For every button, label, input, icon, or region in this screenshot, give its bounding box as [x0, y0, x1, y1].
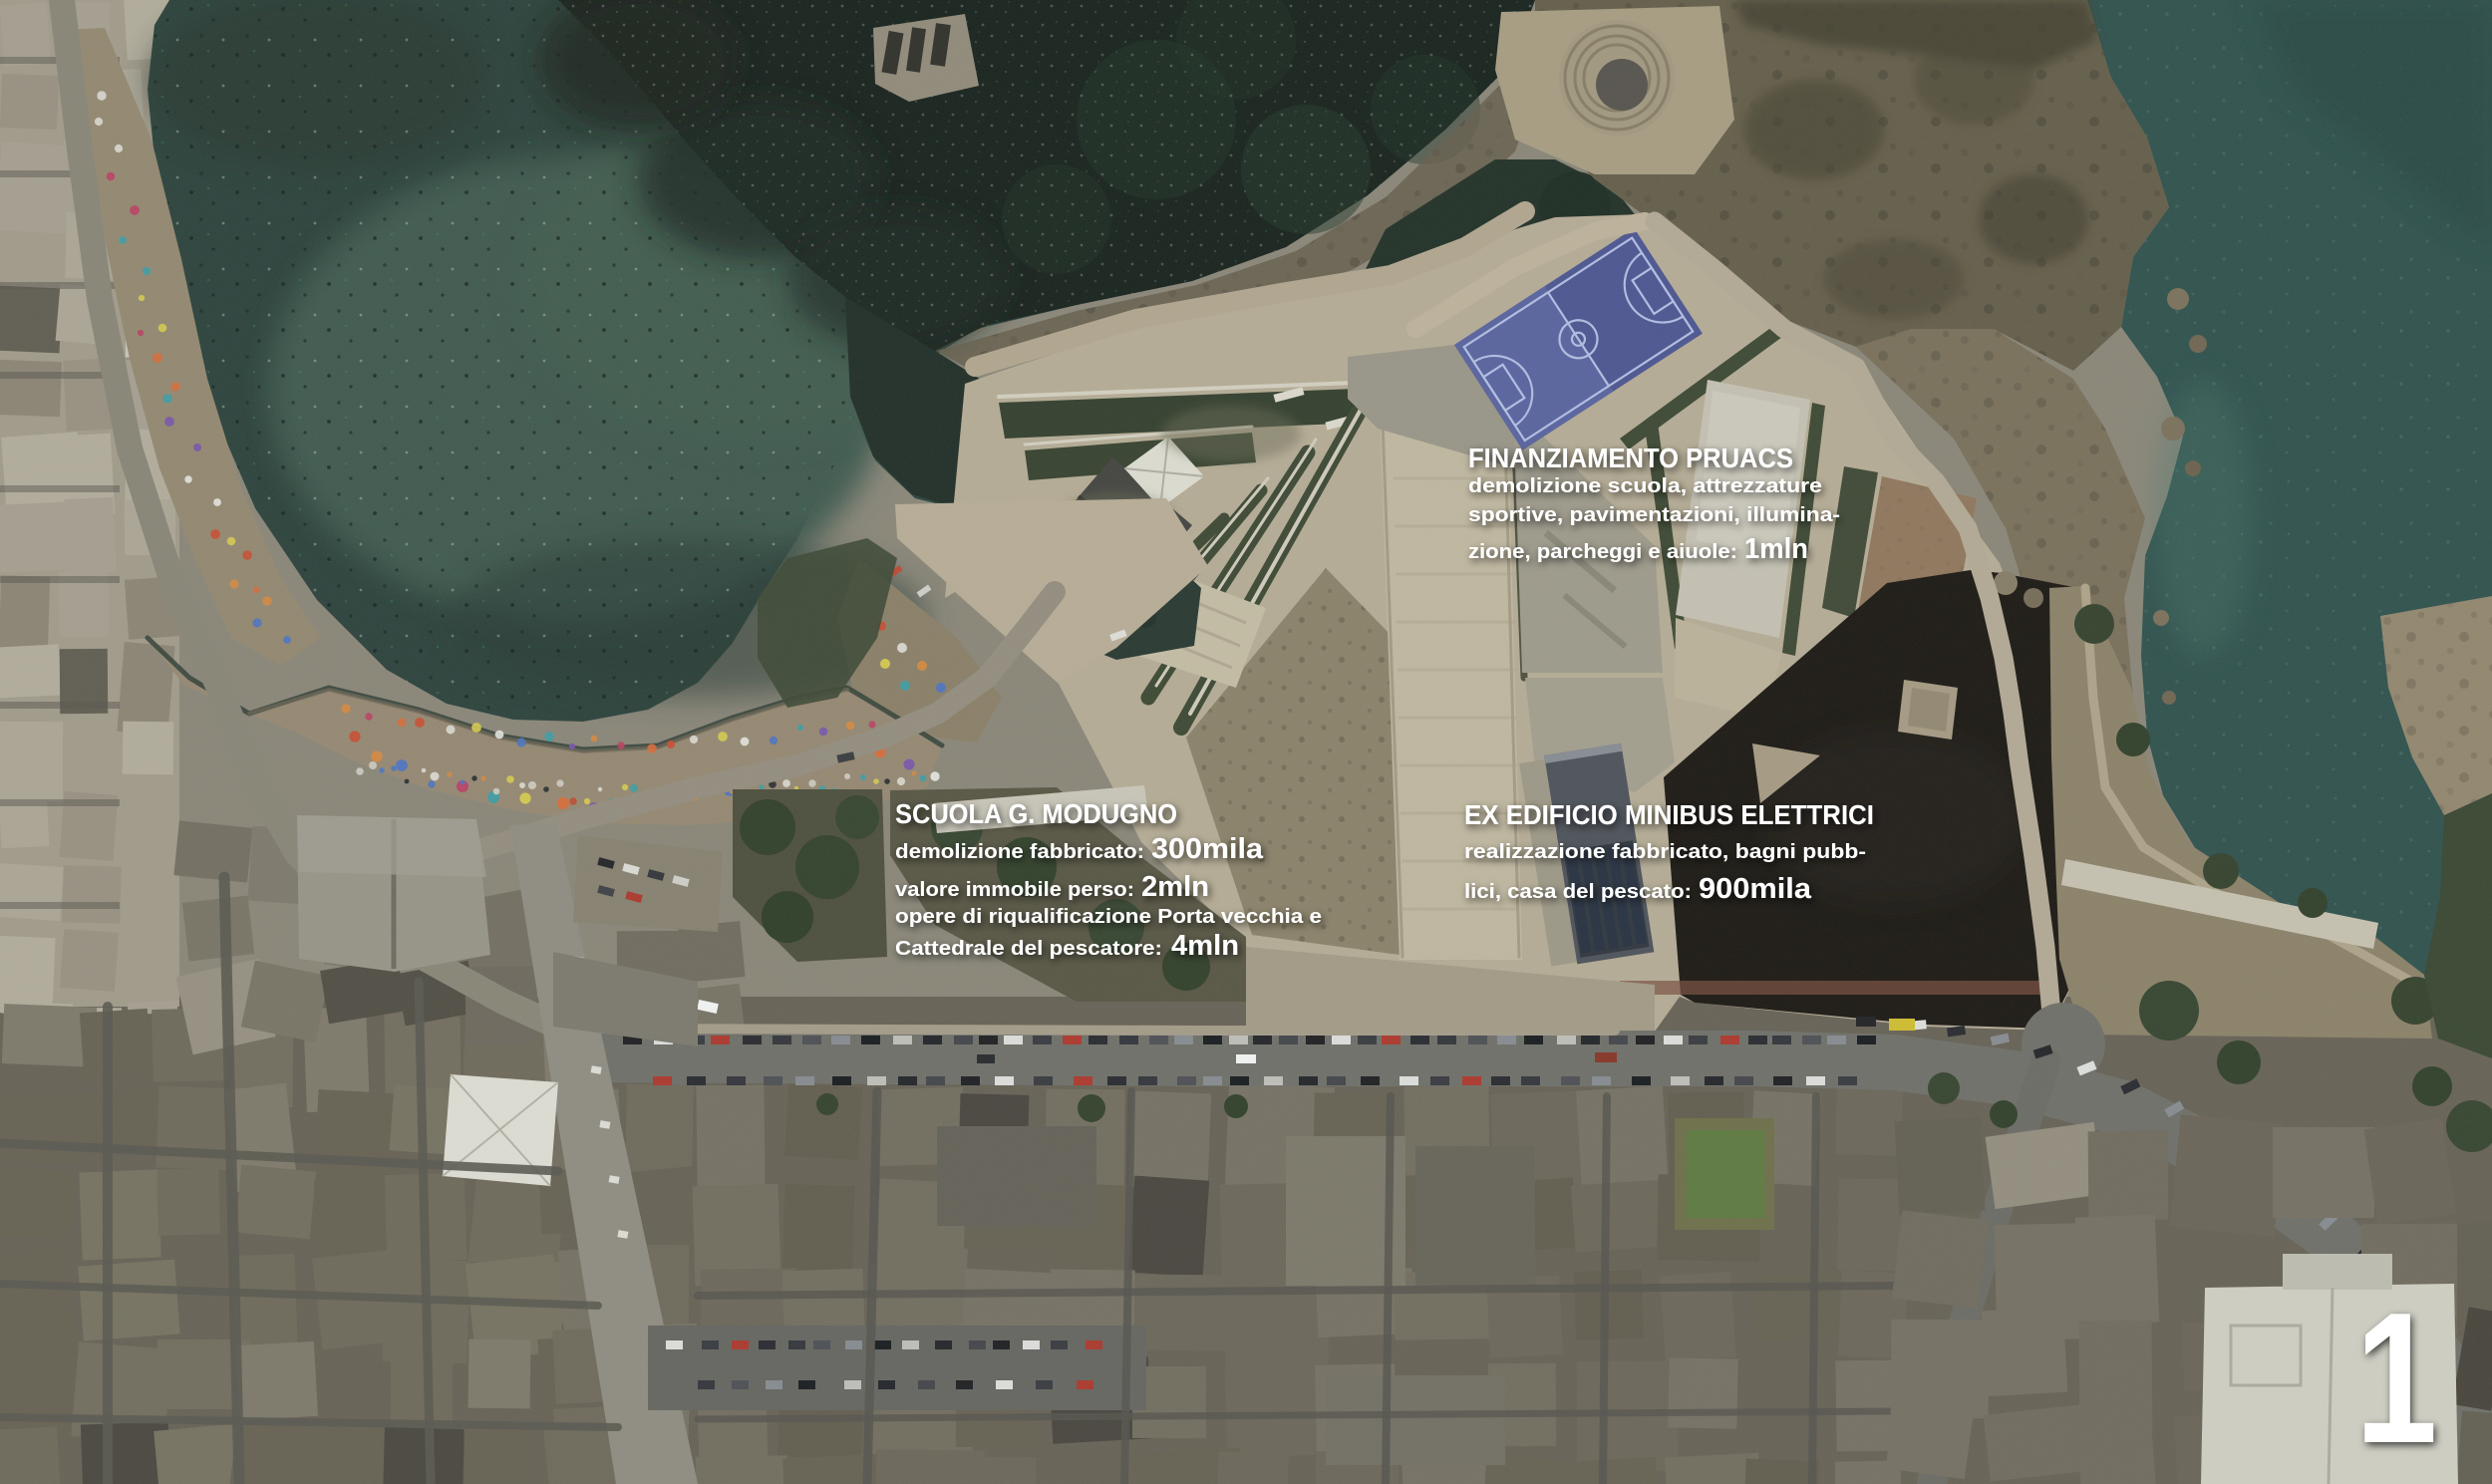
svg-text:FINANZIAMENTO PRUACS: FINANZIAMENTO PRUACS	[1468, 443, 1793, 473]
svg-text:4mln: 4mln	[1171, 930, 1239, 962]
svg-text:opere di riqualificazione Port: opere di riqualificazione Porta vecchia …	[895, 905, 1322, 928]
svg-text:sportive, pavimentazioni, illu: sportive, pavimentazioni, illumina-	[1468, 503, 1840, 526]
svg-text:SCUOLA G. MODUGNO: SCUOLA G. MODUGNO	[895, 798, 1177, 829]
svg-text:Cattedrale del pescatore:: Cattedrale del pescatore:	[895, 937, 1162, 960]
svg-text:1: 1	[2355, 1273, 2437, 1482]
svg-text:demolizione scuola, attrezzatu: demolizione scuola, attrezzature	[1468, 474, 1822, 497]
svg-text:1mln: 1mln	[1744, 533, 1808, 565]
svg-text:EX EDIFICIO MINIBUS ELETTRICI: EX EDIFICIO MINIBUS ELETTRICI	[1464, 799, 1874, 830]
svg-text:300mila: 300mila	[1151, 833, 1264, 865]
svg-text:2mln: 2mln	[1141, 871, 1209, 903]
svg-text:realizzazione fabbricato, bagn: realizzazione fabbricato, bagni pubb-	[1464, 840, 1866, 863]
svg-text:lici, casa del pescato:: lici, casa del pescato:	[1464, 880, 1692, 903]
svg-text:zione, parcheggi e aiuole:: zione, parcheggi e aiuole:	[1468, 540, 1737, 563]
svg-text:valore immobile perso:: valore immobile perso:	[895, 878, 1134, 901]
svg-text:demolizione fabbricato:: demolizione fabbricato:	[895, 840, 1144, 863]
svg-text:900mila: 900mila	[1699, 873, 1812, 905]
